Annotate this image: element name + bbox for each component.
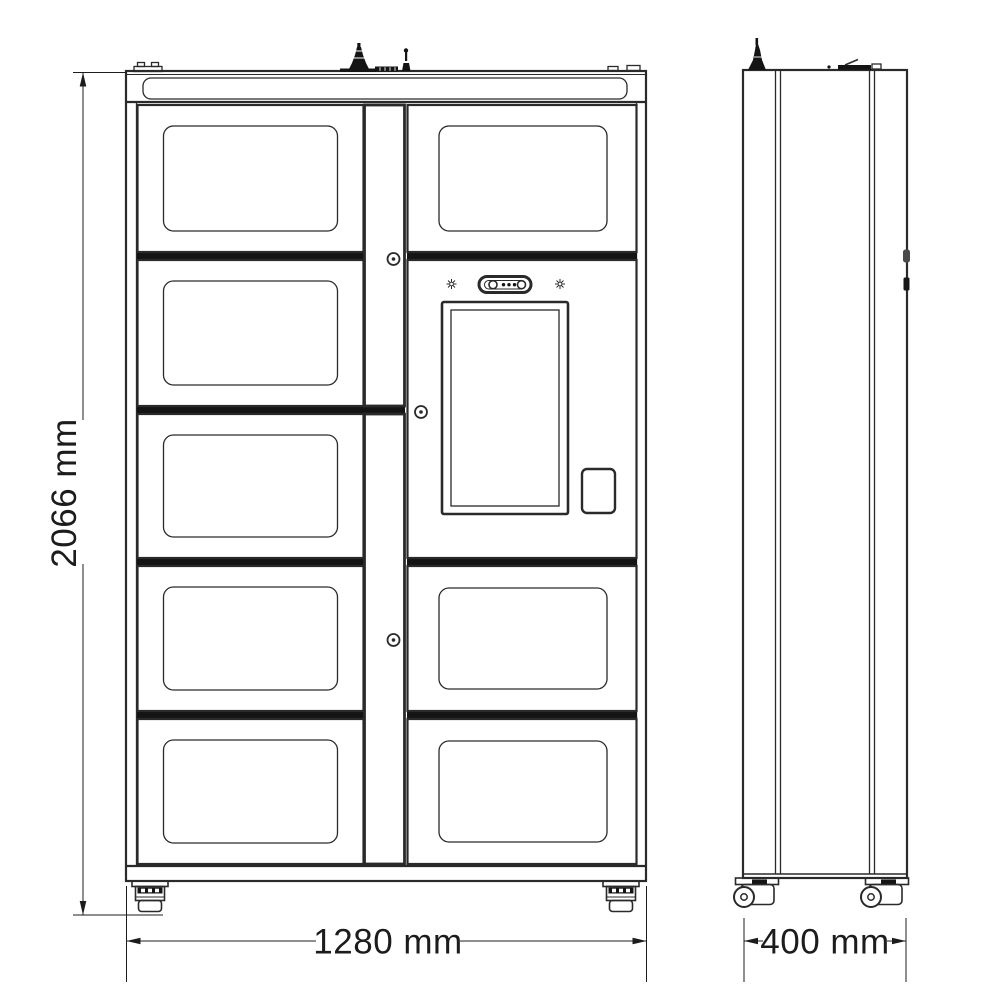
height-dimension-label: 2066 mm — [45, 418, 84, 567]
left-door-column — [138, 105, 364, 864]
lock-icon — [388, 634, 400, 646]
lock-icon — [388, 253, 400, 265]
caster-wheel — [734, 887, 754, 907]
locker-door — [138, 105, 364, 252]
touchscreen — [442, 302, 568, 514]
right-door-column — [408, 105, 637, 864]
side-view — [734, 38, 910, 907]
side-lock-cylinder — [903, 250, 910, 263]
drawing-canvas: 2066 mm 1280 mm 400 mm — [0, 0, 1000, 1000]
control-panel-section — [408, 260, 637, 558]
depth-dimension-label: 400 mm — [760, 923, 889, 962]
technical-drawing: 2066 mm 1280 mm 400 mm — [0, 0, 1000, 1000]
lock-icon — [415, 406, 427, 418]
card-reader — [582, 469, 615, 513]
vent-block — [375, 67, 398, 72]
screw-icon — [555, 279, 565, 289]
side-outline — [743, 70, 907, 878]
caster-wheel — [861, 887, 881, 907]
side-lock-latch — [904, 278, 910, 291]
locker-door — [138, 260, 364, 406]
front-view — [126, 43, 646, 912]
width-dimension-label: 1280 mm — [313, 923, 462, 962]
screw-icon — [447, 279, 457, 289]
